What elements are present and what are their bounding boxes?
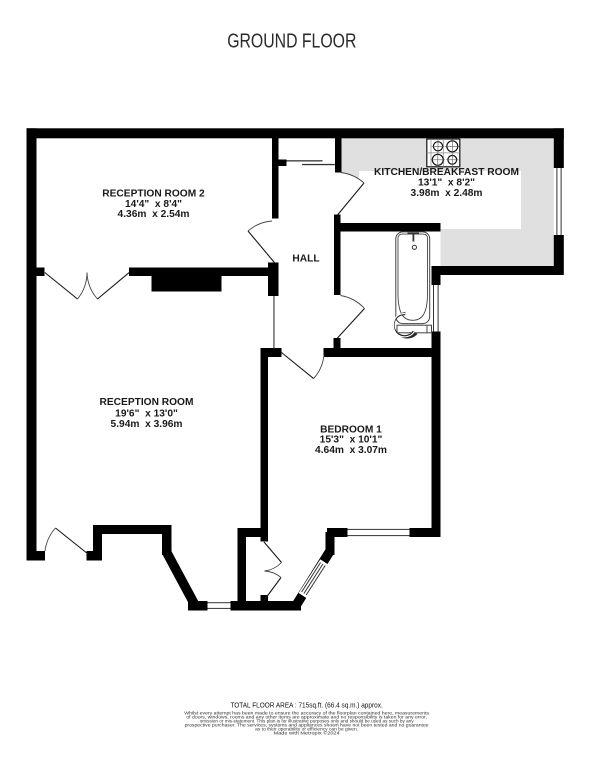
svg-text:GROUND FLOOR: GROUND FLOOR xyxy=(227,30,356,52)
svg-text:3.98m x 2.48m: 3.98m x 2.48m xyxy=(411,188,483,199)
svg-text:HALL: HALL xyxy=(292,254,319,265)
svg-text:4.64m x 3.07m: 4.64m x 3.07m xyxy=(315,445,387,456)
svg-text:KITCHEN/BREAKFAST ROOM: KITCHEN/BREAKFAST ROOM xyxy=(374,167,519,178)
svg-text:5.94m x 3.96m: 5.94m x 3.96m xyxy=(111,419,183,430)
svg-text:TOTAL FLOOR AREA : 715sq.ft. (: TOTAL FLOOR AREA : 715sq.ft. (66.4 sq.m.… xyxy=(230,701,382,710)
svg-text:13'1" x 8'2": 13'1" x 8'2" xyxy=(418,177,475,188)
svg-text:15'3" x 10'1": 15'3" x 10'1" xyxy=(320,435,383,446)
svg-text:4.36m x 2.54m: 4.36m x 2.54m xyxy=(118,209,190,220)
svg-text:Made with Metropix ©2024: Made with Metropix ©2024 xyxy=(274,731,341,736)
svg-text:RECEPTION ROOM: RECEPTION ROOM xyxy=(100,397,194,408)
svg-text:19'6" x 13'0": 19'6" x 13'0" xyxy=(115,408,178,419)
